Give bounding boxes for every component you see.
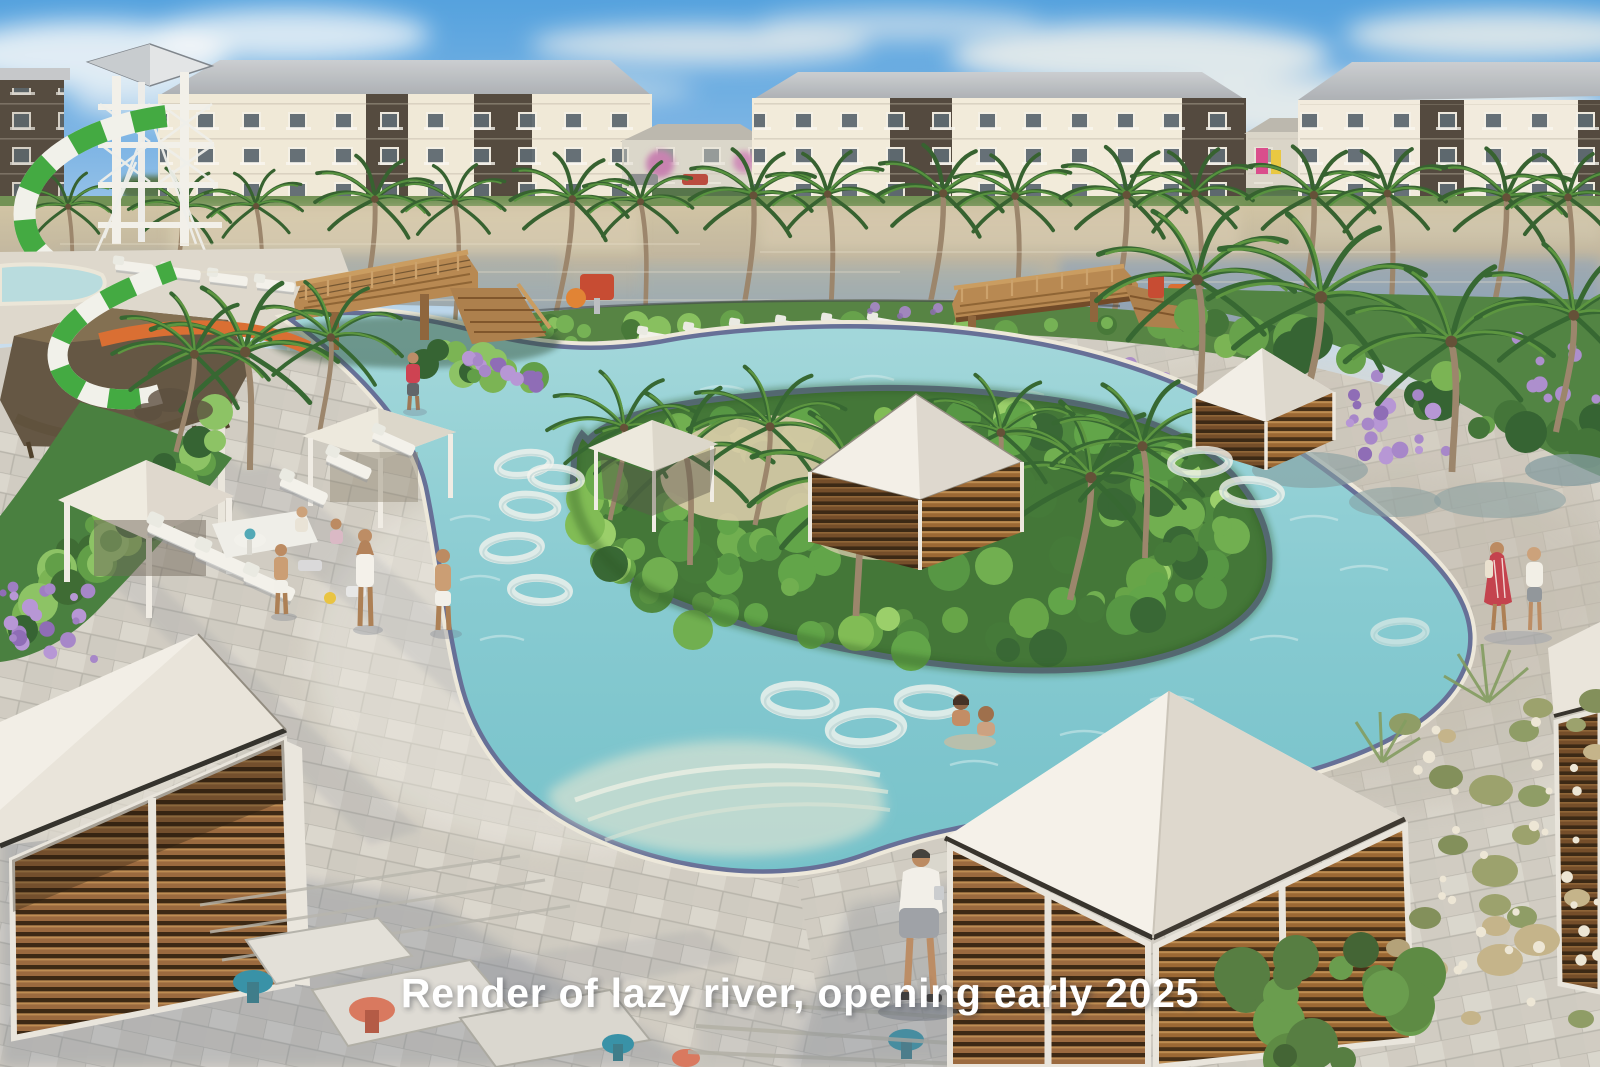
svg-text:Render of lazy river, opening: Render of lazy river, opening early 2025 bbox=[401, 970, 1199, 1016]
